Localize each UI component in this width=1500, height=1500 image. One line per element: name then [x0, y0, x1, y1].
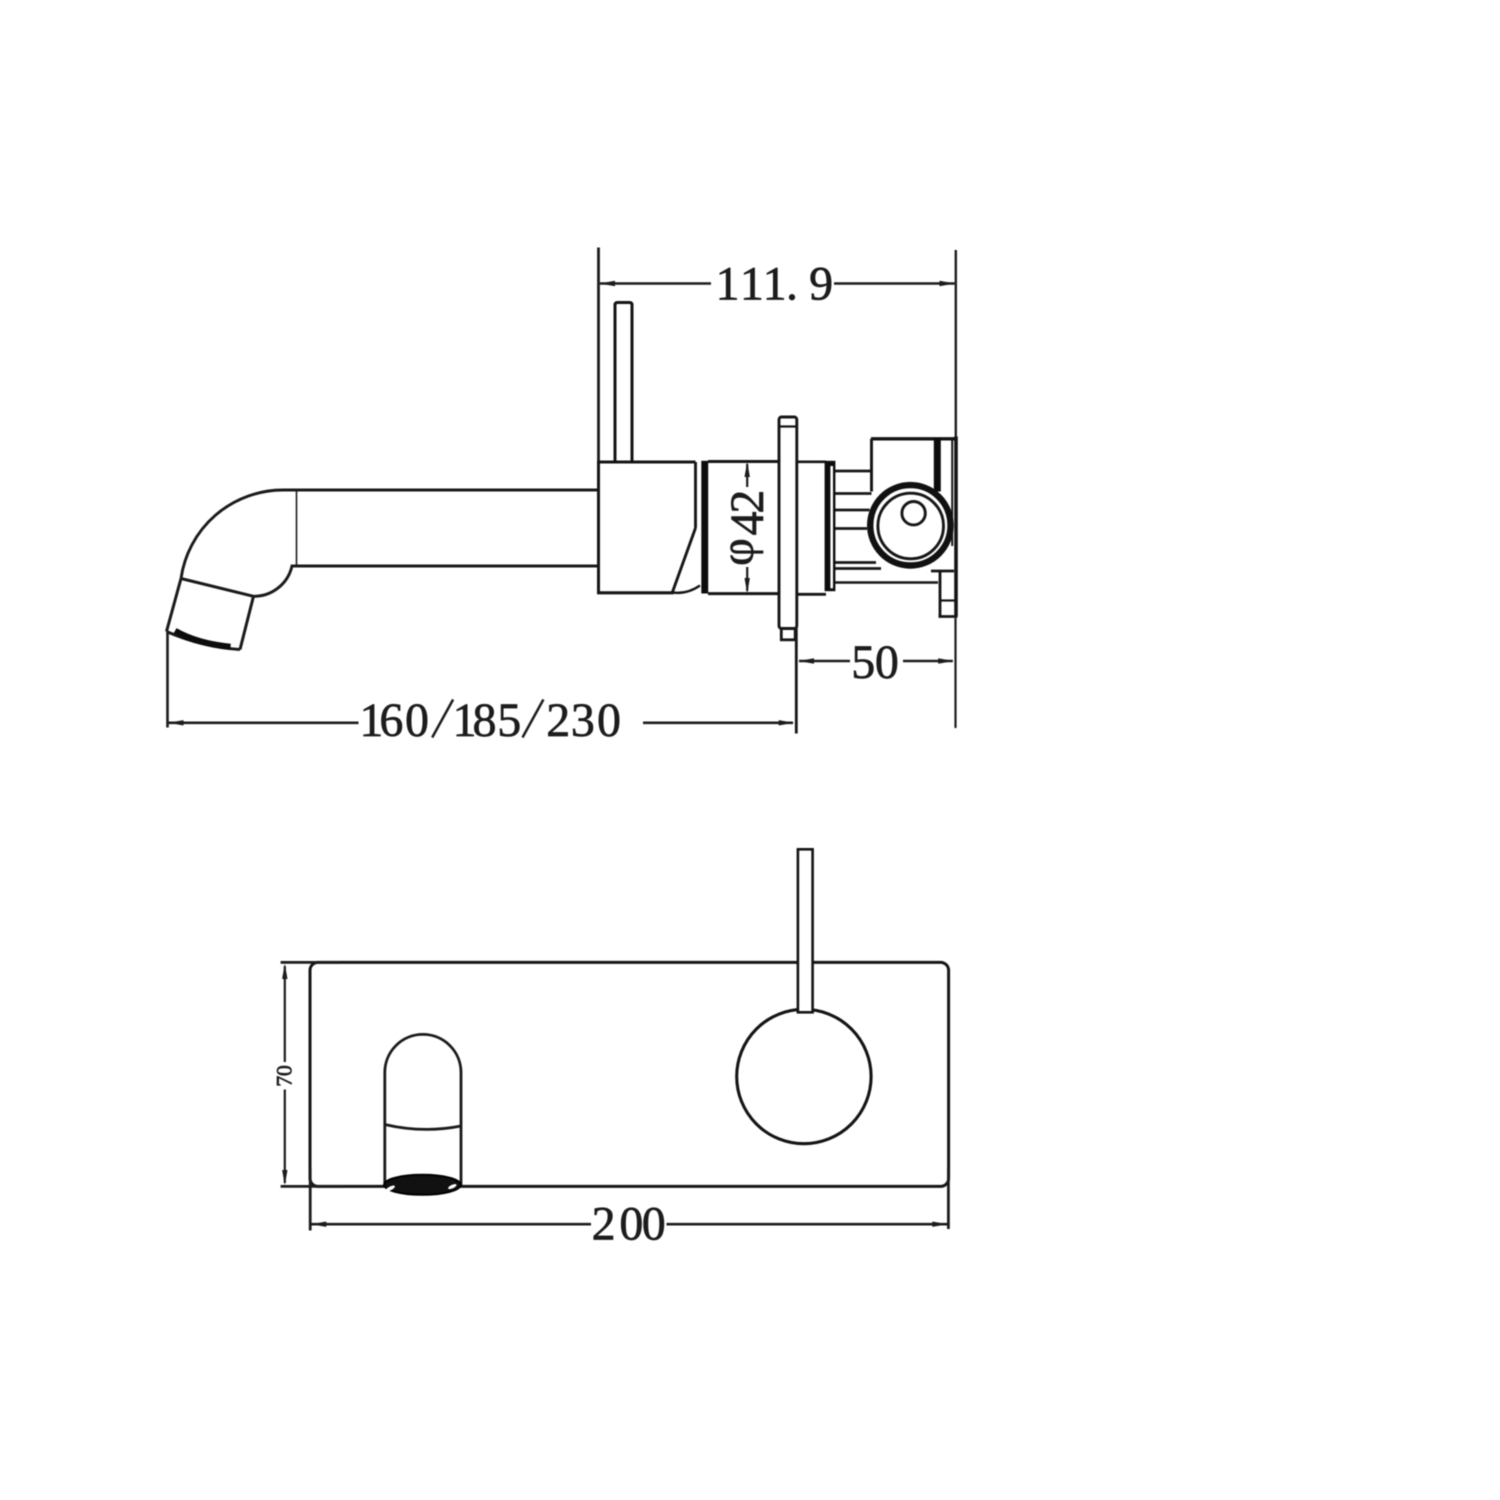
svg-text:160: 160: [359, 694, 429, 747]
svg-text:2: 2: [721, 490, 774, 514]
svg-text:φ: φ: [711, 538, 764, 566]
svg-text:200: 200: [592, 1198, 666, 1251]
svg-text:7: 7: [272, 1076, 297, 1087]
svg-text:4: 4: [721, 512, 774, 536]
svg-text:0: 0: [272, 1065, 297, 1076]
svg-text:111.9: 111.9: [716, 258, 834, 311]
svg-text:50: 50: [851, 636, 899, 689]
svg-text:185: 185: [453, 694, 522, 747]
svg-text:230: 230: [546, 694, 621, 747]
